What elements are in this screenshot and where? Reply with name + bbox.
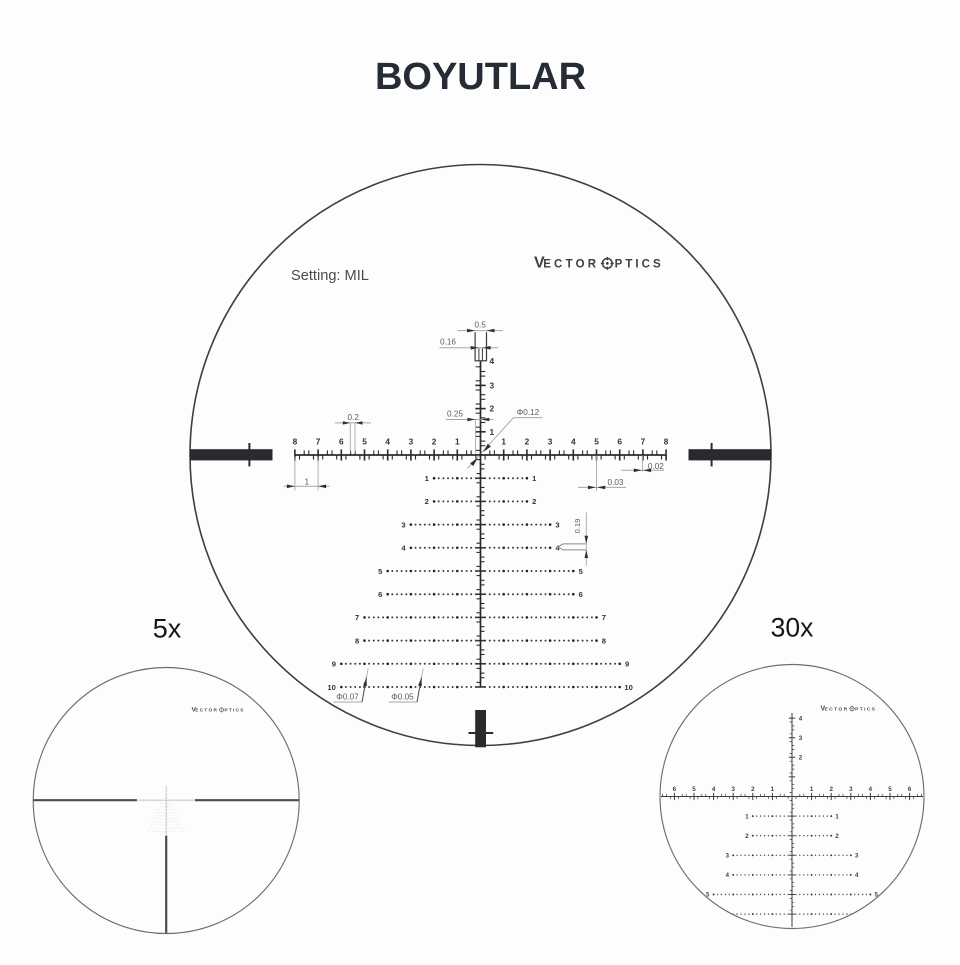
svg-text:5: 5 [362,436,367,446]
svg-text:0.2: 0.2 [348,413,360,422]
svg-text:5: 5 [594,436,599,446]
svg-text:BOYUTLAR: BOYUTLAR [375,56,586,98]
svg-text:8: 8 [293,436,298,446]
svg-text:9: 9 [332,660,336,669]
svg-text:PTICS: PTICS [855,707,876,713]
svg-text:3: 3 [731,786,735,793]
svg-text:Setting: MIL: Setting: MIL [291,268,369,284]
svg-text:1: 1 [810,786,814,793]
svg-text:2: 2 [425,497,429,506]
svg-text:7: 7 [355,613,359,622]
svg-text:Φ0.05: Φ0.05 [391,693,414,702]
svg-text:2: 2 [432,436,437,446]
svg-text:3: 3 [799,735,803,742]
svg-text:1: 1 [771,786,775,793]
svg-text:6: 6 [673,786,677,793]
svg-text:4: 4 [571,436,576,446]
svg-text:2: 2 [799,755,803,762]
svg-text:0.19: 0.19 [573,519,582,534]
svg-text:2: 2 [532,497,536,506]
svg-text:6: 6 [579,590,583,599]
svg-text:2: 2 [489,404,494,414]
svg-text:3: 3 [555,520,559,529]
svg-text:ECTOR: ECTOR [824,707,848,713]
svg-text:2: 2 [751,786,755,793]
svg-text:1: 1 [501,436,506,446]
svg-text:1: 1 [305,477,310,486]
svg-text:0.03: 0.03 [608,478,624,487]
svg-text:Φ0.12: Φ0.12 [517,408,540,417]
svg-text:4: 4 [712,786,716,793]
svg-text:3: 3 [489,380,494,390]
svg-text:0.25: 0.25 [447,409,463,418]
svg-text:6: 6 [339,436,344,446]
svg-text:7: 7 [316,436,321,446]
svg-text:7: 7 [602,613,606,622]
svg-text:PTICS: PTICS [225,708,245,713]
svg-text:3: 3 [849,786,853,793]
svg-text:6: 6 [617,436,622,446]
svg-text:8: 8 [664,436,669,446]
svg-text:4: 4 [869,786,873,793]
svg-text:6: 6 [908,786,912,793]
svg-text:3: 3 [401,520,405,529]
svg-text:3: 3 [548,436,553,446]
svg-text:30x: 30x [771,613,814,643]
svg-text:0.02: 0.02 [648,462,664,471]
svg-text:0.5: 0.5 [475,321,487,330]
svg-text:5: 5 [888,786,892,793]
svg-text:8: 8 [355,636,359,645]
svg-text:8: 8 [602,636,606,645]
svg-text:10: 10 [327,683,335,692]
svg-text:4: 4 [385,436,390,446]
svg-text:7: 7 [641,436,646,446]
svg-text:0.16: 0.16 [440,338,456,347]
svg-text:2: 2 [829,786,833,793]
svg-text:ECTOR: ECTOR [195,708,218,713]
svg-text:10: 10 [624,683,632,692]
svg-text:1: 1 [489,427,494,437]
svg-text:5: 5 [692,786,696,793]
svg-text:4: 4 [799,715,803,722]
svg-text:ECTOR: ECTOR [543,259,599,271]
svg-text:5x: 5x [153,613,182,643]
svg-text:9: 9 [625,660,629,669]
svg-text:PTICS: PTICS [615,259,664,271]
svg-text:4: 4 [489,356,494,366]
svg-text:3: 3 [409,436,414,446]
svg-text:2: 2 [525,436,530,446]
svg-text:Φ0.07: Φ0.07 [336,693,359,702]
svg-text:6: 6 [378,590,382,599]
svg-text:1: 1 [455,436,460,446]
